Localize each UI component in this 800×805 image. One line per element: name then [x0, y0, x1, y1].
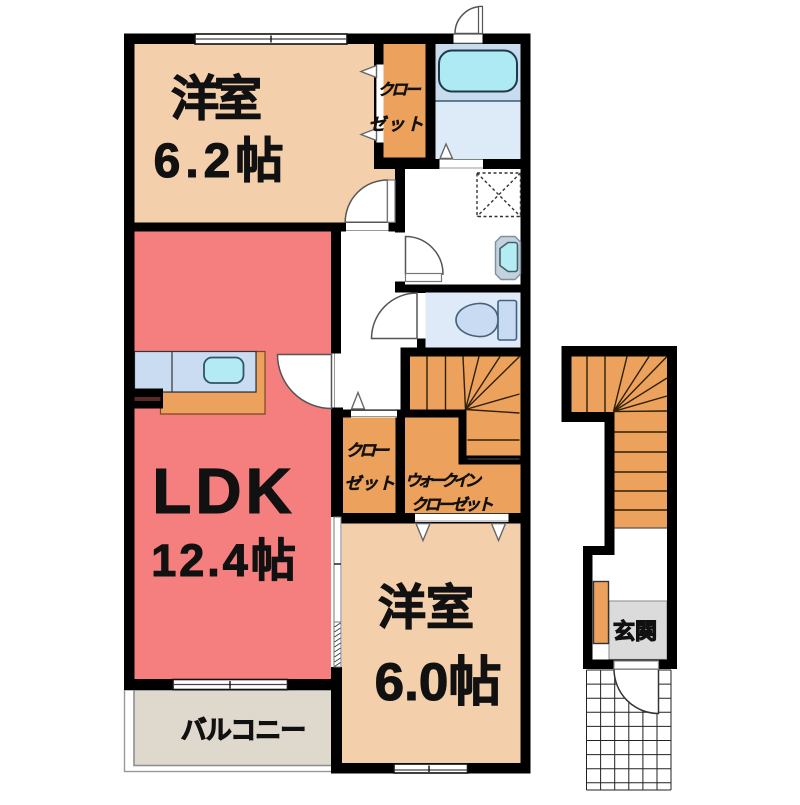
svg-text:LDK: LDK	[152, 455, 296, 527]
svg-text:クローゼット: クローゼット	[411, 496, 494, 514]
svg-text:12.4帖: 12.4帖	[151, 535, 299, 586]
svg-text:洋室: 洋室	[171, 73, 261, 126]
svg-text:クロー: クロー	[378, 81, 422, 99]
svg-text:ゼット: ゼット	[369, 115, 426, 134]
svg-text:ゼット: ゼット	[345, 474, 396, 493]
svg-text:6.2帖: 6.2帖	[154, 135, 289, 188]
svg-text:6.0帖: 6.0帖	[375, 653, 502, 712]
svg-text:クロー: クロー	[346, 442, 391, 460]
svg-text:洋室: 洋室	[378, 582, 474, 635]
svg-text:玄関: 玄関	[613, 619, 657, 644]
svg-text:バルコニー: バルコニー	[181, 715, 305, 745]
svg-text:ウォークイン: ウォークイン	[405, 472, 483, 490]
